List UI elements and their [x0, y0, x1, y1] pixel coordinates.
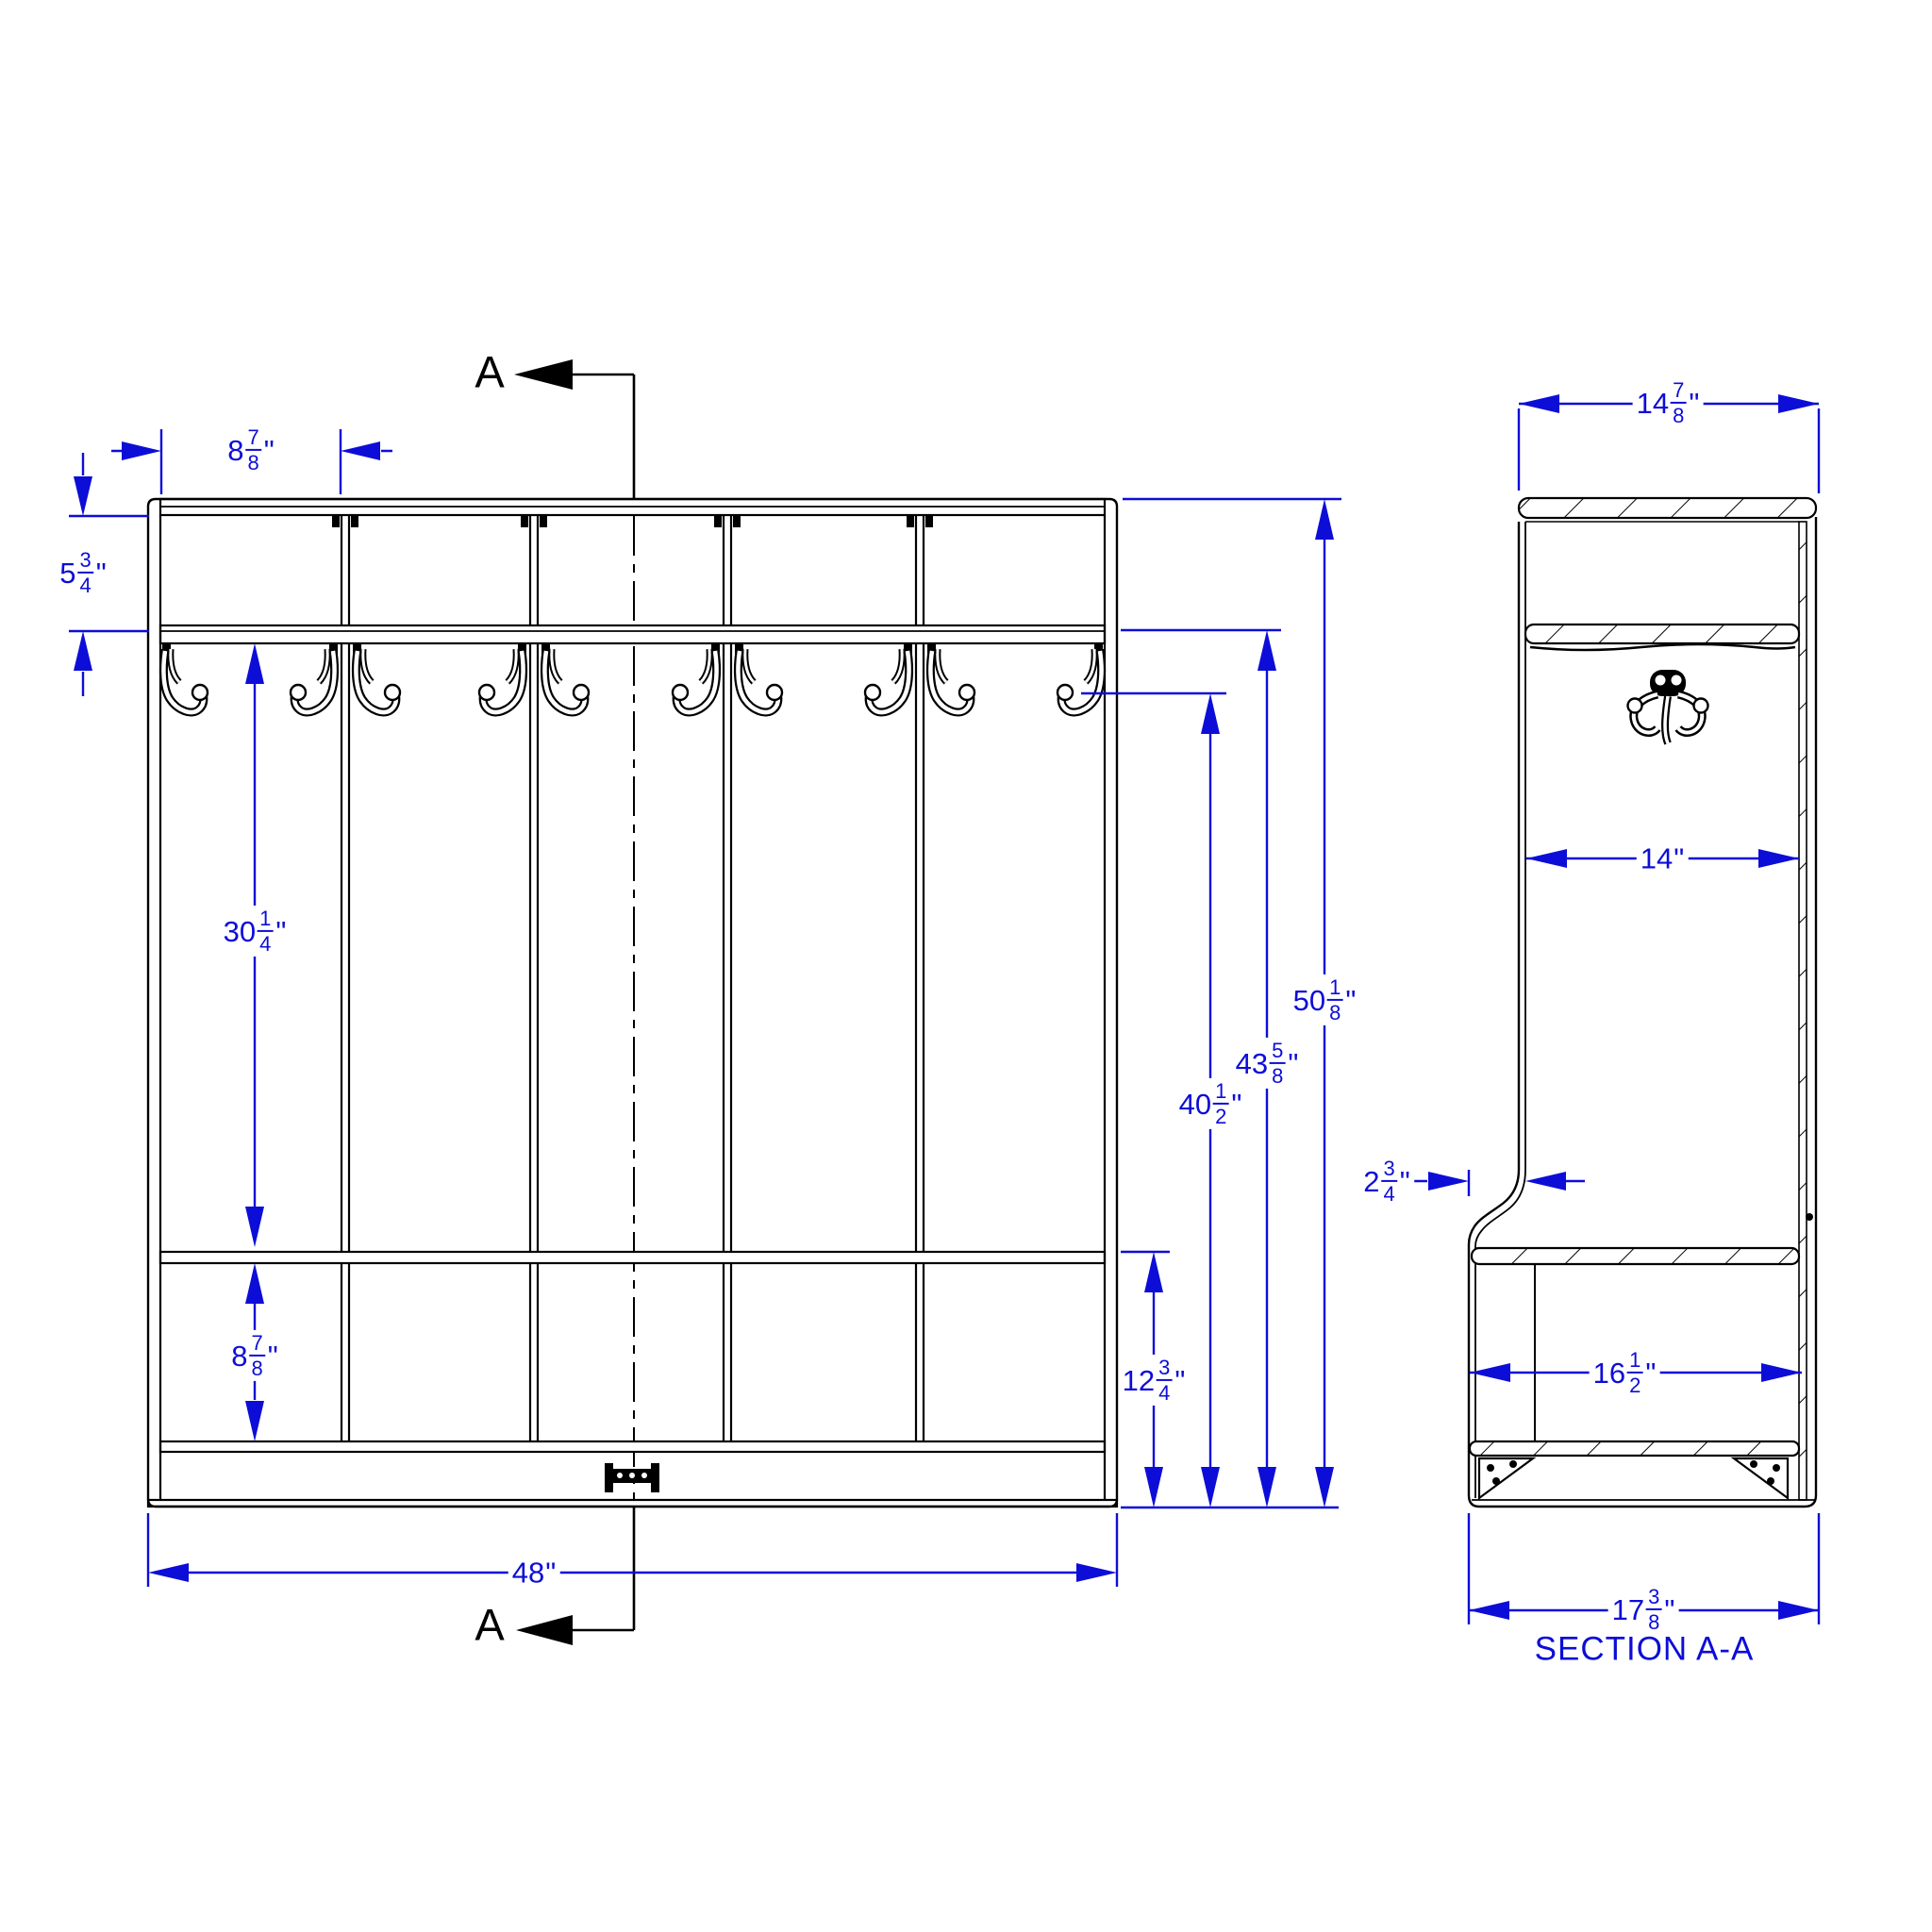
dim-overall-height: 5018": [1290, 974, 1360, 1025]
section-coat-hook: [1628, 670, 1708, 743]
dim-inner-depth: 14": [1637, 842, 1689, 875]
back-panel: [1799, 522, 1807, 1500]
divider-panels: [341, 515, 924, 1441]
front-view: [148, 359, 1117, 1645]
top-rail: [160, 499, 1105, 515]
dim-bench-front-offset: 234": [1359, 1156, 1414, 1207]
upper-shelf: [160, 625, 1105, 656]
bench-top: [160, 1252, 1105, 1263]
section-marker-a-bottom: A: [475, 1603, 504, 1647]
front-dimensions: [69, 429, 1341, 1587]
section-gussets: [1479, 1458, 1788, 1498]
dim-overall-depth: 1738": [1608, 1584, 1679, 1635]
dim-bench-to-lower-shelf: 878": [227, 1330, 282, 1381]
dim-bench-inner-depth: 1612": [1590, 1347, 1660, 1398]
divider-joints: [332, 516, 933, 527]
section-marker-a-top: A: [475, 350, 504, 394]
section-title: SECTION A-A: [1535, 1633, 1755, 1666]
dim-floor-to-bench: 1234": [1119, 1355, 1190, 1406]
outer-frame: [148, 499, 1117, 1507]
dim-bay-width: 878": [224, 425, 278, 475]
dim-top-depth: 1478": [1633, 377, 1704, 428]
dim-floor-to-shelf: 4358": [1232, 1038, 1303, 1089]
coat-hooks: [161, 649, 1104, 712]
section-arrow-top: [514, 359, 634, 499]
back-panel-fastener: [1806, 1213, 1813, 1221]
section-lower-shelf: [1470, 1441, 1799, 1456]
lower-shelf: [160, 1441, 1105, 1452]
dim-top-rail-to-shelf: 534": [56, 547, 110, 598]
section-upper-shelf: [1525, 625, 1799, 650]
dim-shelf-to-bench: 3014": [220, 906, 291, 957]
section-top-rail: [1519, 498, 1816, 522]
mount-bracket: [605, 1463, 659, 1492]
dim-overall-width: 48": [508, 1557, 560, 1590]
drawing-sheet: 878" 534" 3014" 878" 48" 1234" 4012" 435…: [0, 0, 1932, 1932]
section-dimensions: [1411, 394, 1819, 1624]
section-bench-top: [1472, 1248, 1799, 1264]
